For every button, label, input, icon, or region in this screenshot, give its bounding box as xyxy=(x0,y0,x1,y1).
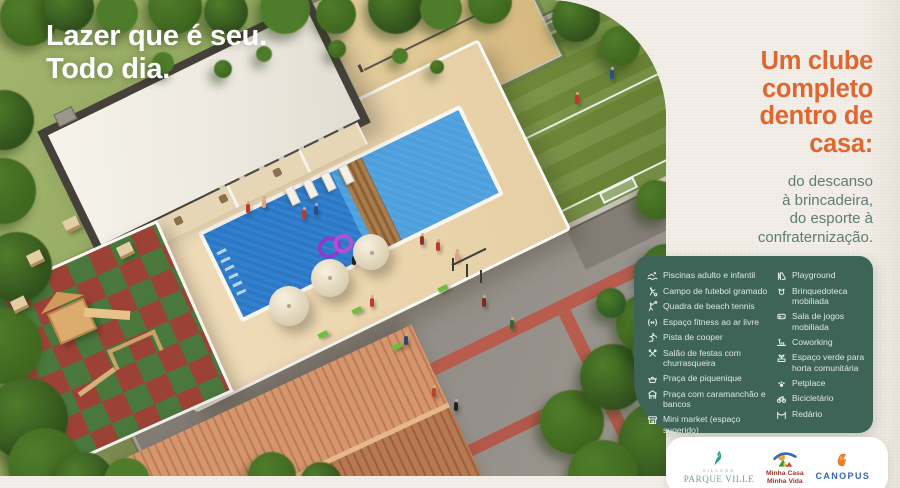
picnic-icon xyxy=(647,373,658,384)
person xyxy=(370,298,374,307)
amenity-label: Playground xyxy=(792,270,835,281)
mcmv-house-icon xyxy=(773,449,797,469)
headline: Lazer que é seu. Todo dia. xyxy=(46,20,267,86)
person xyxy=(436,242,440,251)
amenities-column-right: PlaygroundBrinquedoteca mobiliadaSala de… xyxy=(776,270,865,425)
amenity-item: Quadra de beach tennis xyxy=(647,301,769,312)
parque-ville-logo: VILLAGE PARQUE VILLE xyxy=(684,450,754,484)
beach-tennis-icon xyxy=(647,301,658,312)
swimmer-icon xyxy=(647,270,658,281)
amenity-label: Campo de futebol gramado xyxy=(663,286,767,297)
amenity-label: Sala de jogos mobiliada xyxy=(792,311,865,332)
amenity-item: Redário xyxy=(776,409,865,420)
amenity-item: Coworking xyxy=(776,337,865,348)
person xyxy=(314,206,318,215)
person xyxy=(246,204,250,213)
amenity-label: Bicicletário xyxy=(792,393,834,404)
amenity-item: Praça de piquenique xyxy=(647,373,769,384)
amenity-label: Espaço fitness ao ar livre xyxy=(663,317,759,328)
logo-card: VILLAGE PARQUE VILLE Minha Casa Minha Vi… xyxy=(666,437,888,488)
amenity-label: Salão de festas com churrasqueira xyxy=(663,348,769,369)
amenities-column-left: Piscinas adulto e infantilCampo de futeb… xyxy=(647,270,769,425)
toys-icon xyxy=(776,286,787,297)
mcmv-label: Minha Casa Minha Vida xyxy=(766,470,804,485)
amenity-label: Pista de cooper xyxy=(663,332,723,343)
amenity-item: Espaço fitness ao ar livre xyxy=(647,317,769,328)
playground-icon xyxy=(776,270,787,281)
headline-line: Todo dia. xyxy=(46,53,267,86)
games-icon xyxy=(776,311,787,322)
amenities-panel: Piscinas adulto e infantilCampo de futeb… xyxy=(634,256,873,433)
amenity-label: Redário xyxy=(792,409,822,420)
tree xyxy=(600,26,640,66)
person xyxy=(575,95,579,104)
amenity-label: Praça de piquenique xyxy=(663,373,742,384)
bbq-icon xyxy=(647,348,658,359)
garden-icon xyxy=(776,352,787,363)
amenity-label: Brinquedoteca mobiliada xyxy=(792,286,865,307)
tree xyxy=(328,40,346,58)
market-icon xyxy=(647,414,658,425)
amenity-item: Piscinas adulto e infantil xyxy=(647,270,769,281)
swing xyxy=(107,329,156,354)
person xyxy=(404,336,408,345)
amenity-label: Quadra de beach tennis xyxy=(663,301,755,312)
amenity-item: Playground xyxy=(776,270,865,281)
tree xyxy=(430,60,444,74)
right-subheading: do descanso à brincadeira, do esporte à … xyxy=(643,173,873,247)
person xyxy=(510,320,514,329)
mcmv-logo: Minha Casa Minha Vida xyxy=(766,449,804,485)
bike-icon xyxy=(776,393,787,404)
tree xyxy=(392,48,408,64)
amenity-label: Espaço verde para horta comunitária xyxy=(792,352,865,373)
amenity-item: Salão de festas com churrasqueira xyxy=(647,348,769,369)
runner-icon xyxy=(647,332,658,343)
marketing-banner: Lazer que é seu. Todo dia. Um clube comp… xyxy=(0,0,900,488)
amenity-item: Bicicletário xyxy=(776,393,865,404)
soccer-player-icon xyxy=(647,286,658,297)
aerial-render-photo: Lazer que é seu. Todo dia. xyxy=(0,0,666,476)
amenity-label: Coworking xyxy=(792,337,833,348)
amenity-item: Petplace xyxy=(776,378,865,389)
amenity-label: Piscinas adulto e infantil xyxy=(663,270,755,281)
hammock-icon xyxy=(776,409,787,420)
seesaw xyxy=(78,367,117,397)
pool-umbrella xyxy=(311,259,349,297)
tree xyxy=(596,288,626,318)
pet-icon xyxy=(776,378,787,389)
coworking-icon xyxy=(776,337,787,348)
amenity-label: Praça com caramanchão e bancos xyxy=(663,389,769,410)
pool-umbrella xyxy=(269,286,309,326)
amenity-item: Sala de jogos mobiliada xyxy=(776,311,865,332)
amenity-item: Brinquedoteca mobiliada xyxy=(776,286,865,307)
canopus-icon xyxy=(834,453,851,470)
amenity-item: Praça com caramanchão e bancos xyxy=(647,389,769,410)
amenity-item: Pista de cooper xyxy=(647,332,769,343)
amenity-label: Petplace xyxy=(792,378,825,389)
fitness-icon xyxy=(647,317,658,328)
amenity-item: Campo de futebol gramado xyxy=(647,286,769,297)
canopus-name: CANOPUS xyxy=(815,471,870,481)
pull-up-bar xyxy=(480,270,482,283)
person xyxy=(420,236,424,245)
amenity-item: Espaço verde para horta comunitária xyxy=(776,352,865,373)
headline-line: Lazer que é seu. xyxy=(46,20,267,53)
person xyxy=(432,388,436,397)
person xyxy=(302,210,306,219)
person xyxy=(262,199,266,208)
person xyxy=(454,402,458,411)
amenity-item: Mini market (espaço sugerido) xyxy=(647,414,769,435)
canopus-logo: CANOPUS xyxy=(815,453,870,481)
parque-ville-name: PARQUE VILLE xyxy=(684,474,754,484)
pull-up-bar xyxy=(466,264,468,277)
right-heading: Um clube completo dentro de casa: xyxy=(643,48,873,158)
amenity-label: Mini market (espaço sugerido) xyxy=(663,414,769,435)
hummingbird-icon xyxy=(710,450,727,467)
pergola-icon xyxy=(647,389,658,400)
person xyxy=(482,298,486,307)
person xyxy=(610,70,614,79)
parque-ville-village-label: VILLAGE xyxy=(703,468,736,473)
pool-umbrella xyxy=(353,234,389,270)
